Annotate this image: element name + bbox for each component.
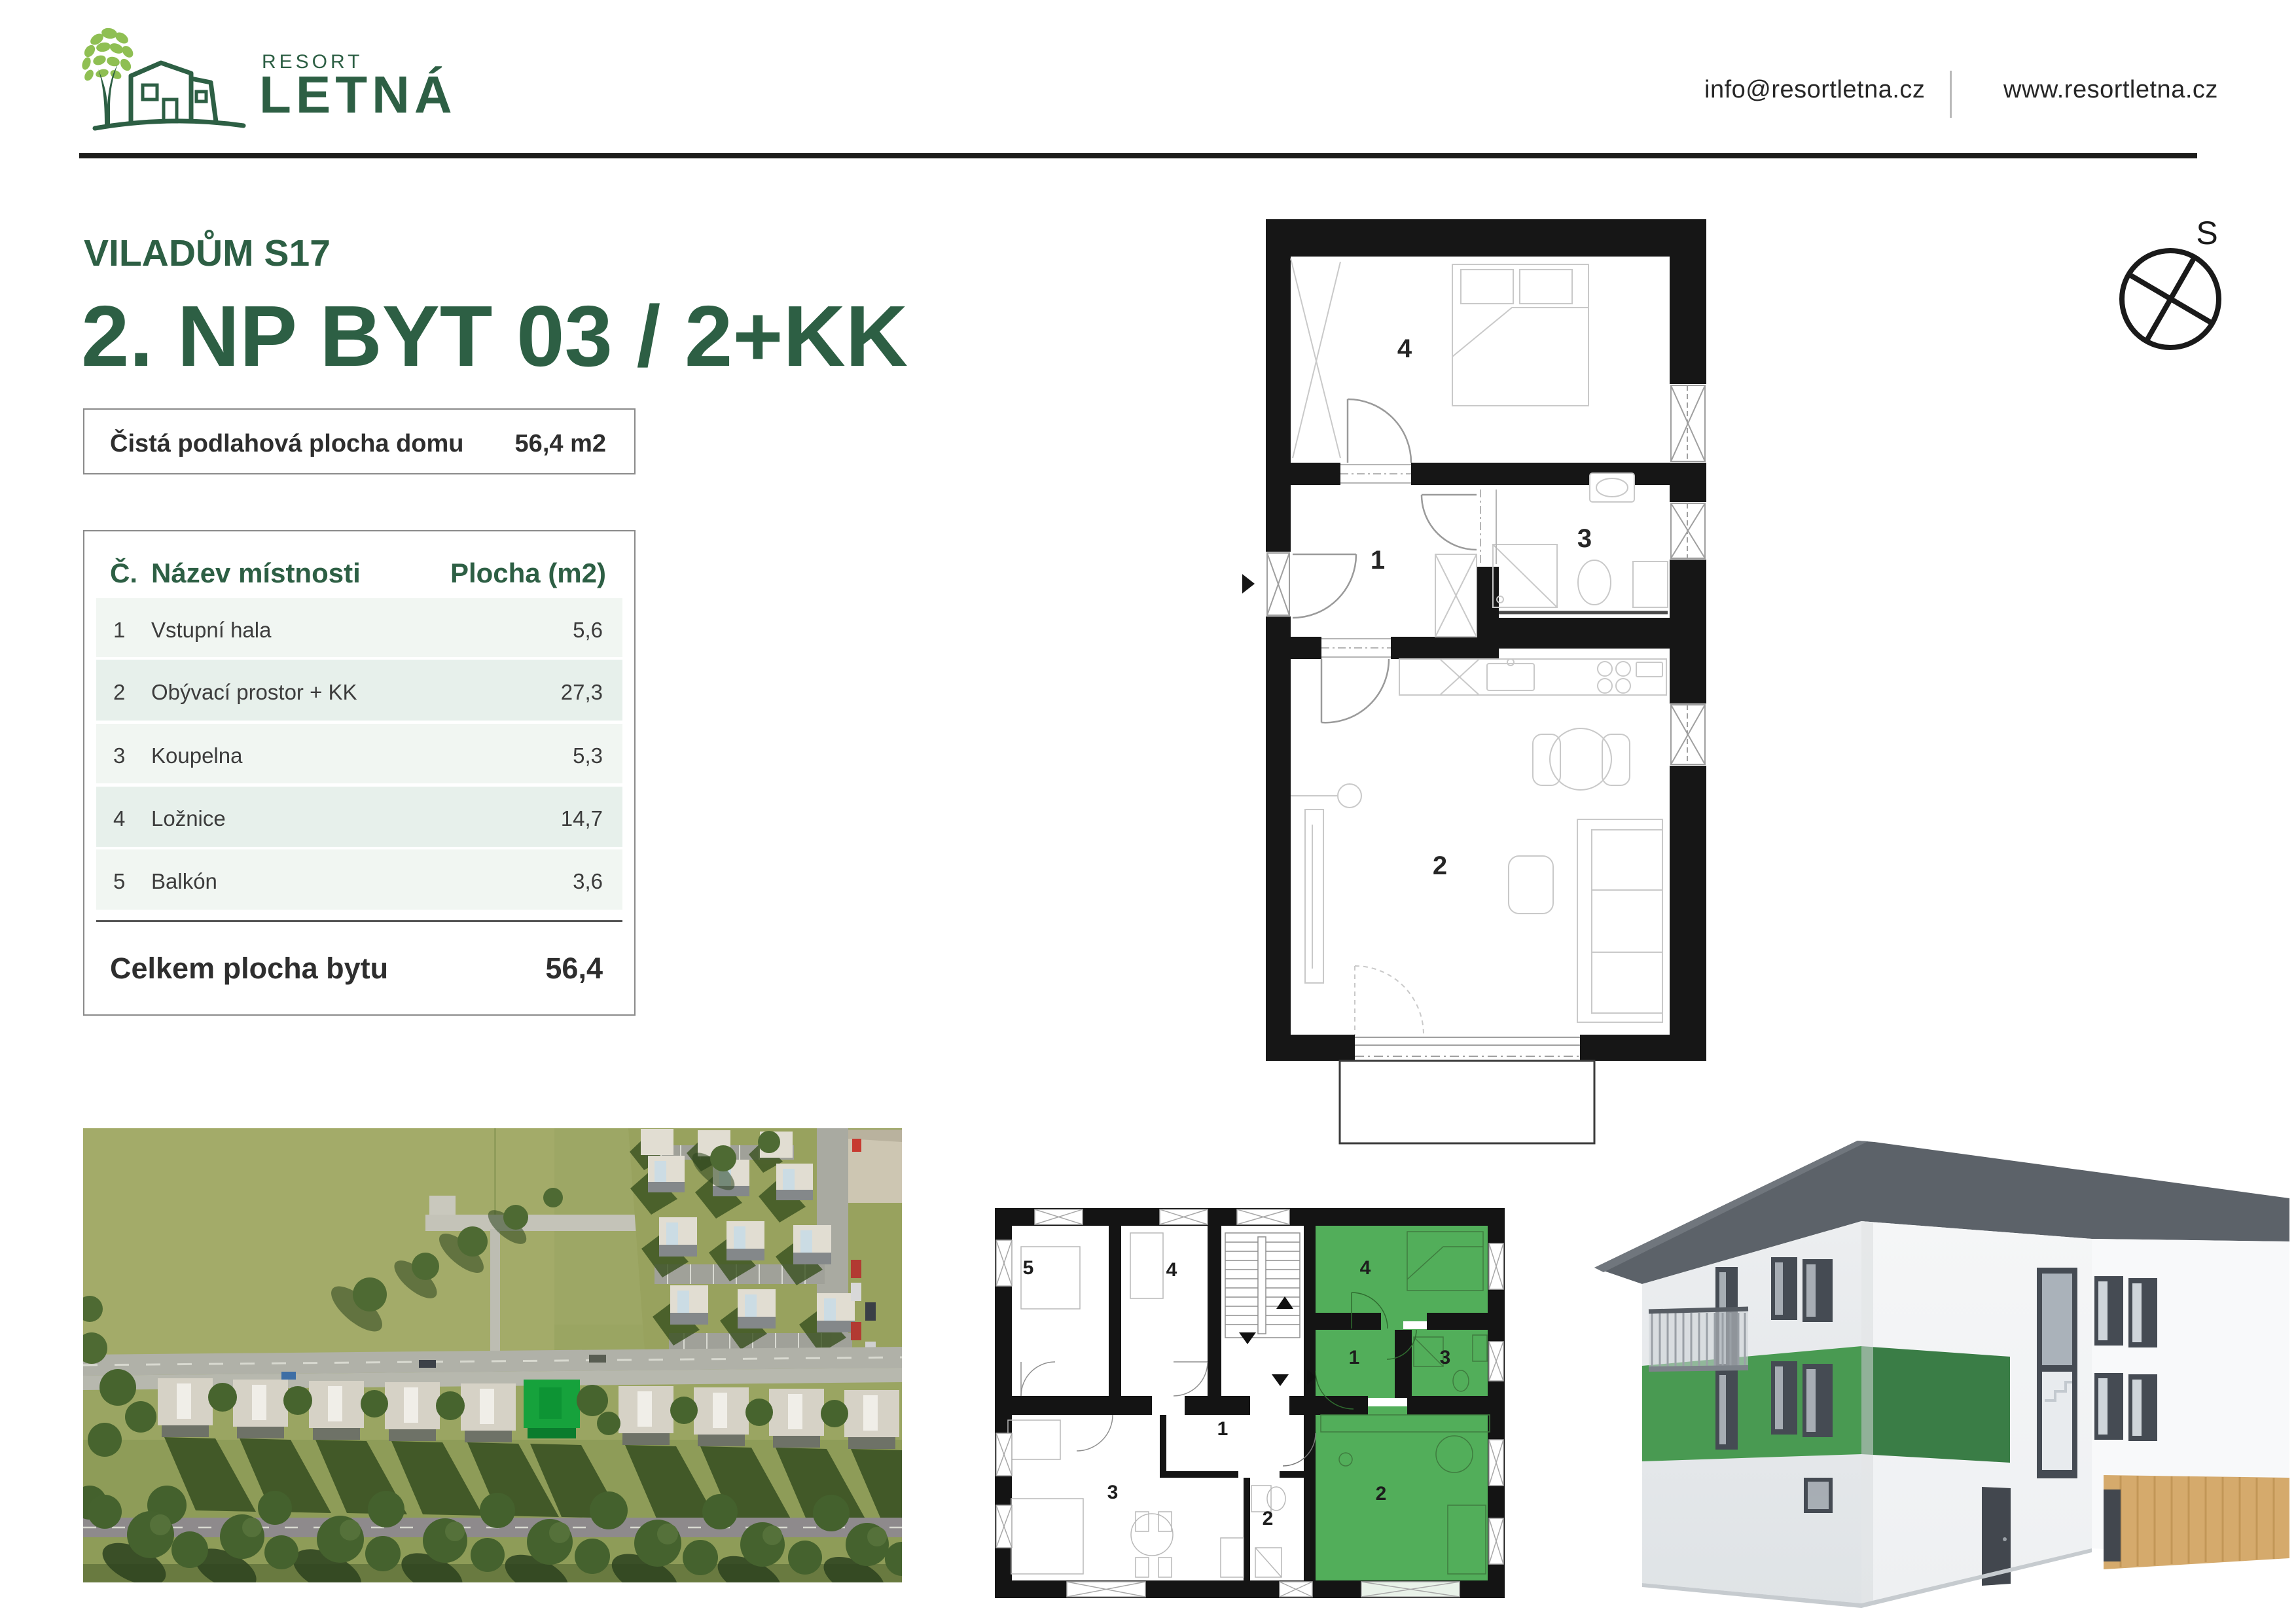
svg-text:4: 4	[1360, 1257, 1371, 1279]
svg-text:1: 1	[1349, 1347, 1360, 1368]
svg-text:3: 3	[1577, 524, 1592, 553]
svg-text:1: 1	[1371, 546, 1385, 575]
svg-text:3: 3	[1107, 1482, 1119, 1503]
svg-text:5: 5	[1023, 1257, 1034, 1279]
svg-text:4: 4	[1397, 334, 1412, 363]
svg-text:2: 2	[1263, 1508, 1274, 1529]
svg-text:S: S	[2196, 215, 2217, 251]
svg-text:2: 2	[1376, 1483, 1387, 1505]
svg-text:1: 1	[1217, 1418, 1229, 1440]
svg-text:LETNÁ: LETNÁ	[259, 65, 457, 124]
svg-text:3: 3	[1440, 1347, 1451, 1368]
svg-text:4: 4	[1166, 1259, 1177, 1281]
svg-text:2: 2	[1433, 851, 1447, 880]
